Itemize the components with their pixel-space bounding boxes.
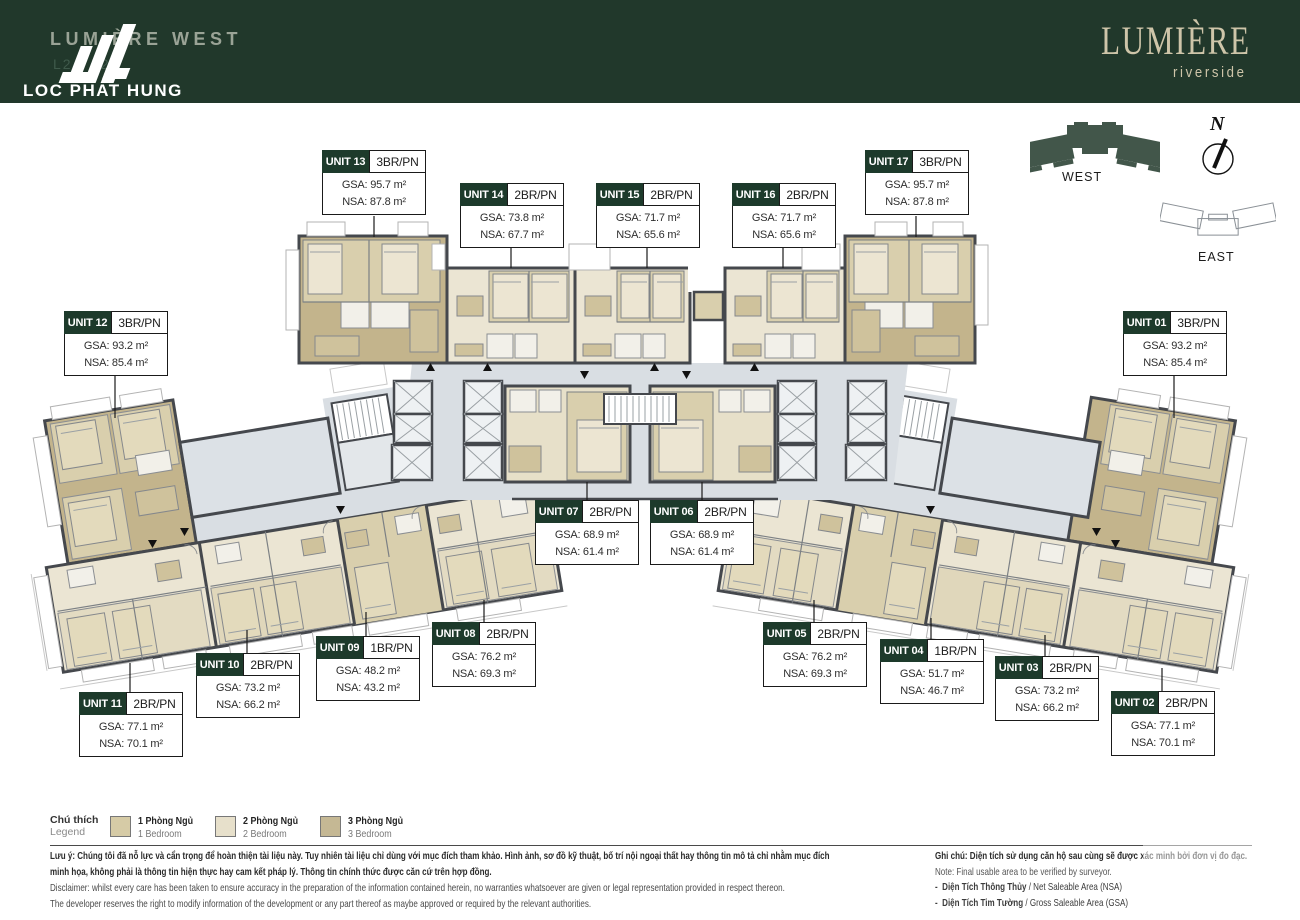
svg-text:N: N	[1209, 113, 1226, 135]
